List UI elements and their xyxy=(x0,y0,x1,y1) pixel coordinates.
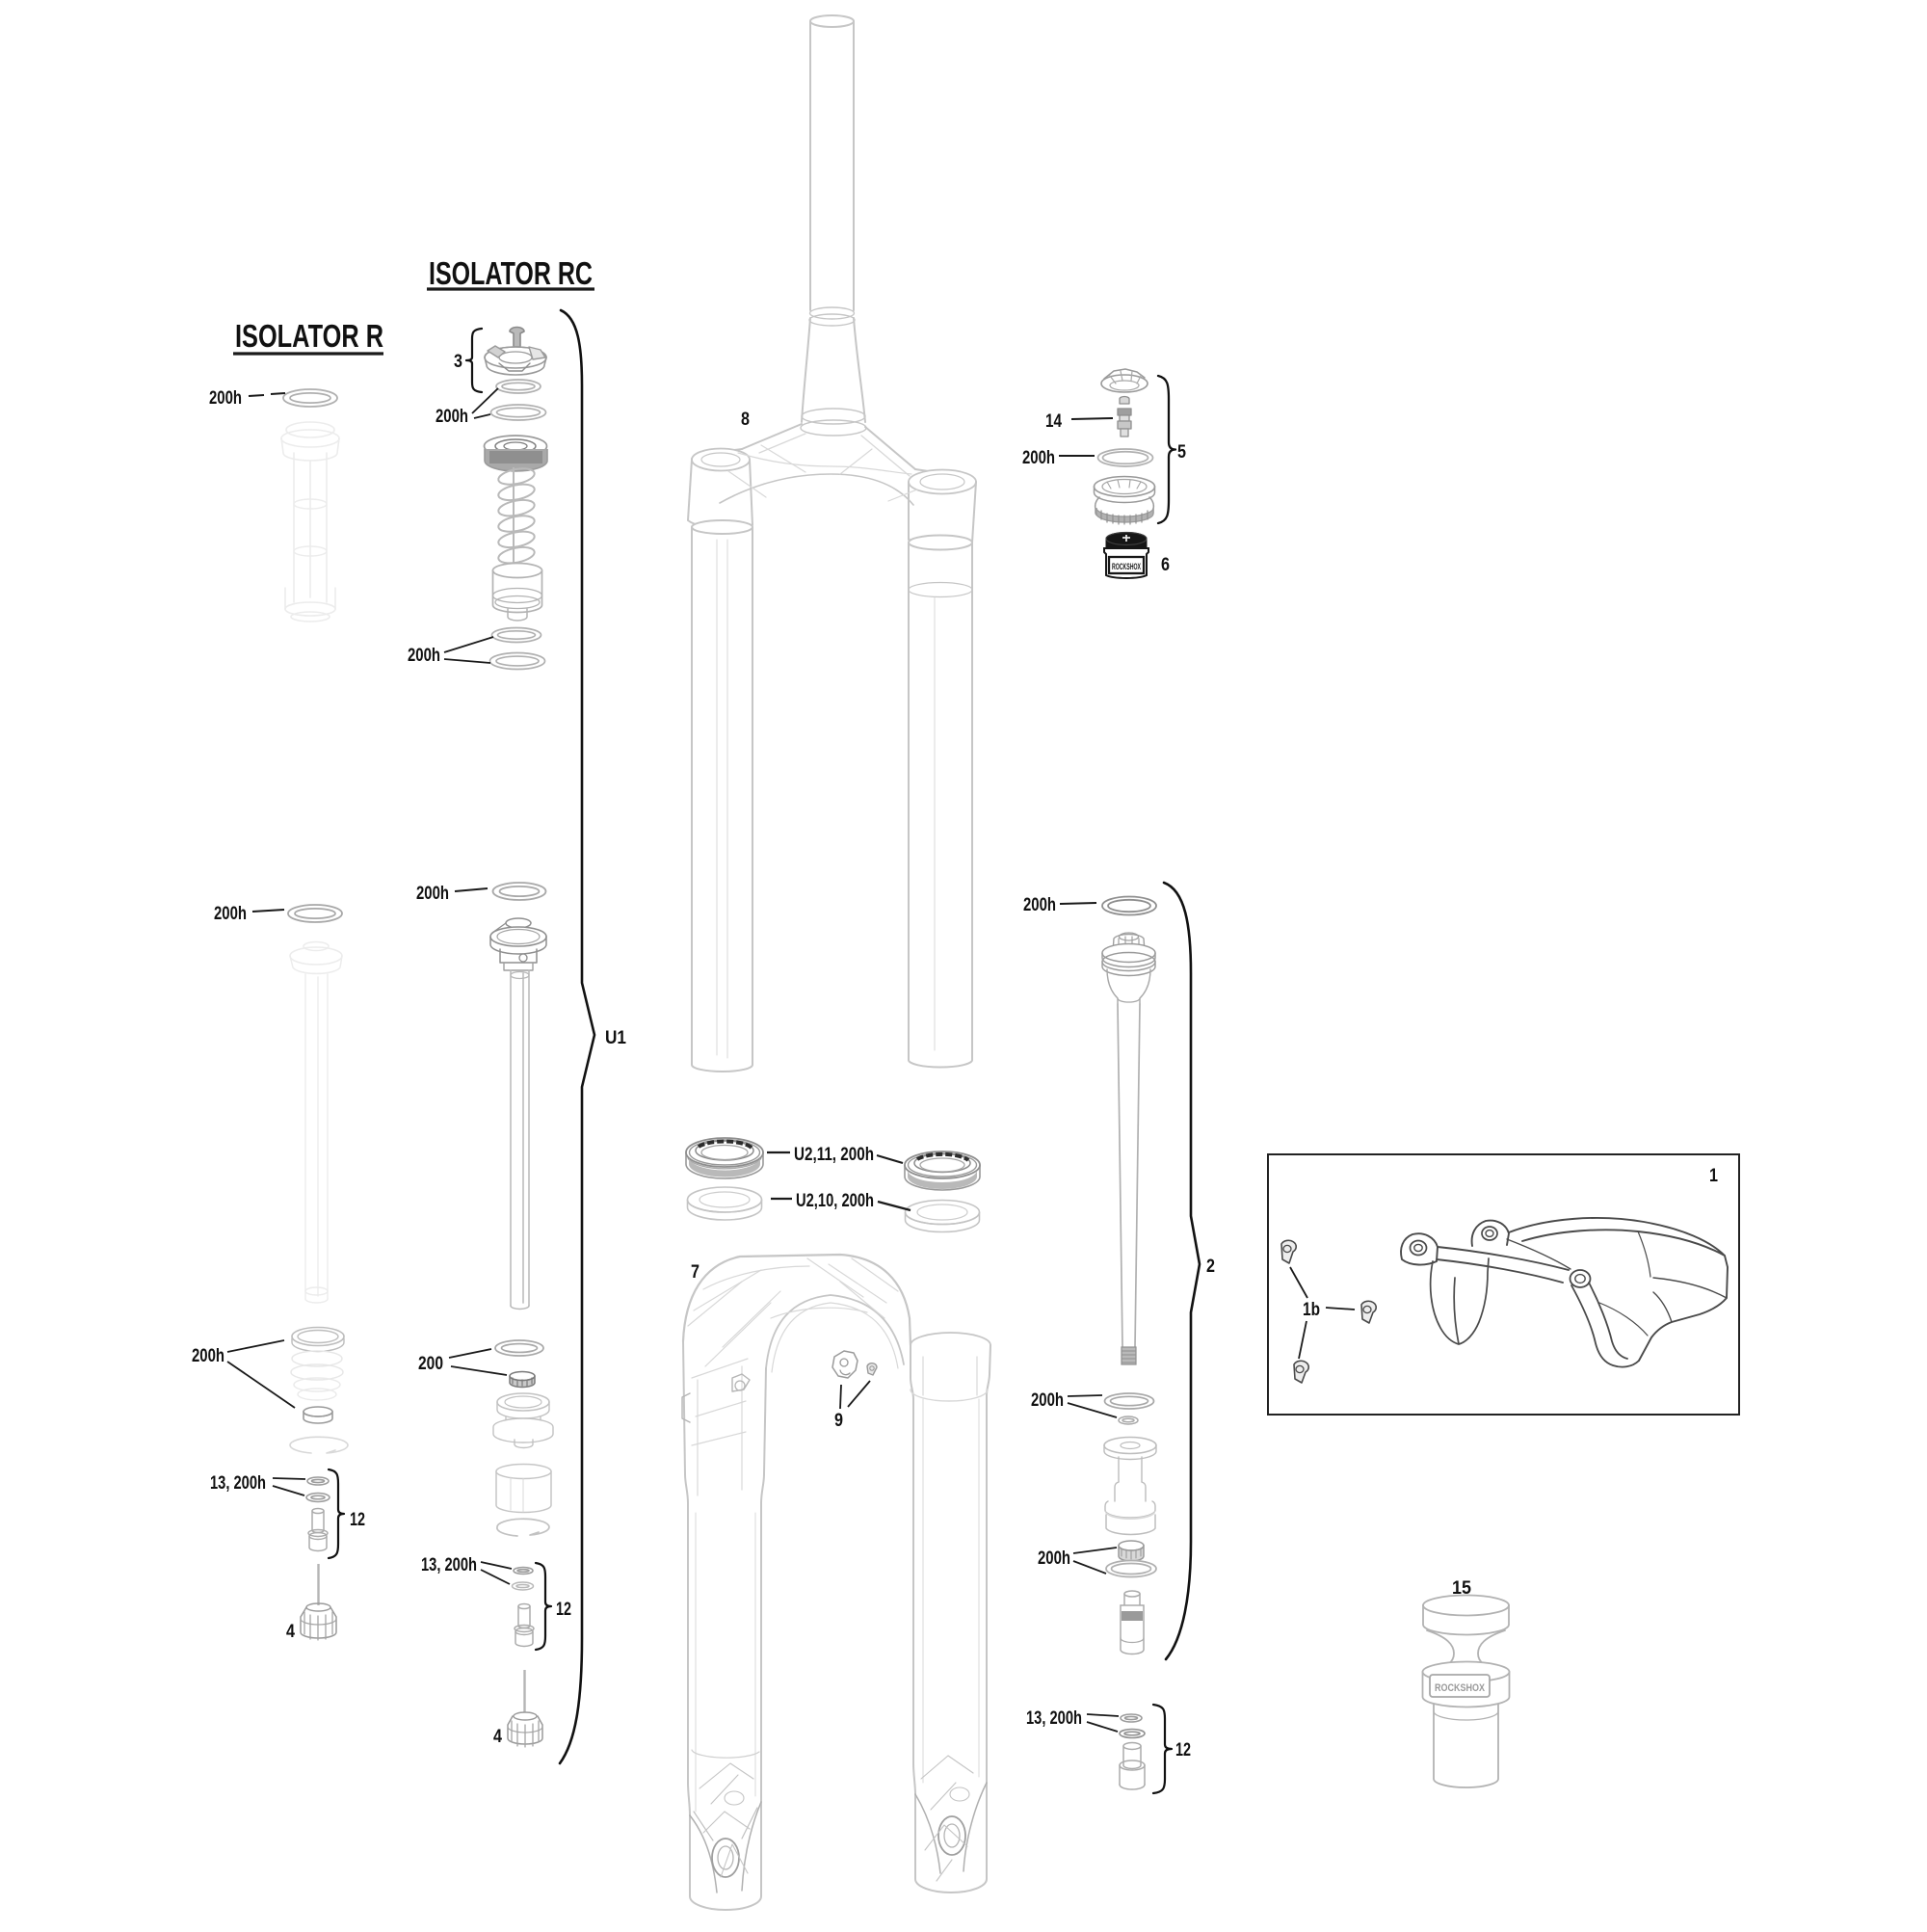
svg-text:ISOLATOR RC: ISOLATOR RC xyxy=(429,255,593,291)
svg-text:200h: 200h xyxy=(1023,894,1056,915)
svg-text:2: 2 xyxy=(1206,1256,1215,1277)
svg-text:6: 6 xyxy=(1161,554,1170,575)
svg-text:200h: 200h xyxy=(416,883,449,904)
svg-text:13, 200h: 13, 200h xyxy=(421,1554,477,1575)
svg-text:U1: U1 xyxy=(605,1027,626,1048)
svg-text:12: 12 xyxy=(350,1509,365,1530)
svg-text:13, 200h: 13, 200h xyxy=(210,1472,266,1494)
svg-text:ROCKSHOX: ROCKSHOX xyxy=(1112,562,1141,572)
svg-text:1b: 1b xyxy=(1303,1299,1320,1320)
svg-text:14: 14 xyxy=(1045,410,1062,432)
svg-text:200: 200 xyxy=(418,1353,443,1374)
svg-text:3: 3 xyxy=(454,351,462,372)
svg-text:13, 200h: 13, 200h xyxy=(1026,1707,1082,1729)
svg-text:200h: 200h xyxy=(1038,1548,1070,1569)
svg-text:U2,11, 200h: U2,11, 200h xyxy=(794,1144,874,1165)
svg-text:9: 9 xyxy=(834,1410,843,1431)
svg-text:5: 5 xyxy=(1177,441,1186,463)
svg-text:4: 4 xyxy=(286,1621,295,1642)
svg-text:200h: 200h xyxy=(1022,447,1055,468)
svg-text:8: 8 xyxy=(741,409,750,430)
svg-text:200h: 200h xyxy=(408,645,440,666)
svg-text:12: 12 xyxy=(1175,1739,1191,1760)
svg-text:200h: 200h xyxy=(1031,1389,1064,1411)
svg-text:ISOLATOR R: ISOLATOR R xyxy=(235,318,383,354)
svg-text:200h: 200h xyxy=(192,1345,224,1366)
svg-text:200h: 200h xyxy=(436,406,468,427)
svg-text:4: 4 xyxy=(493,1726,502,1747)
svg-text:1: 1 xyxy=(1709,1165,1718,1186)
svg-text:12: 12 xyxy=(556,1599,571,1620)
svg-text:ROCKSHOX: ROCKSHOX xyxy=(1435,1682,1486,1694)
svg-text:U2,10, 200h: U2,10, 200h xyxy=(796,1190,874,1211)
svg-text:7: 7 xyxy=(691,1261,700,1283)
svg-text:200h: 200h xyxy=(214,903,247,924)
svg-text:200h: 200h xyxy=(209,387,242,409)
